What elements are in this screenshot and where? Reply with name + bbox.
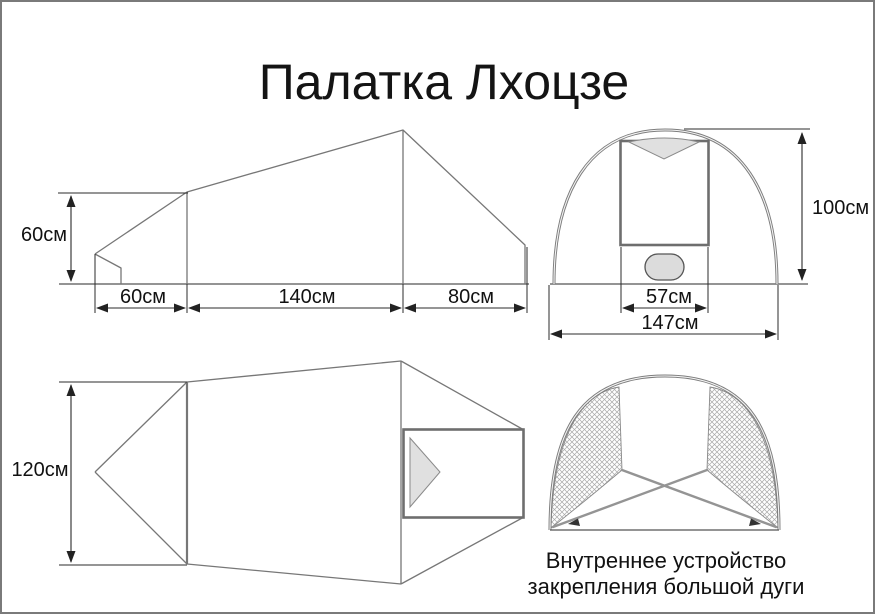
side-height-label: 60см — [21, 224, 67, 246]
front-view: 57см 147см 100см — [549, 129, 869, 340]
front-vestibule-opening — [645, 254, 684, 280]
top-reference-lines — [59, 382, 187, 565]
side-view: 60см 60см 140см 80см — [21, 130, 529, 313]
front-door-width-label: 57см — [646, 286, 692, 308]
top-view: 120см — [11, 361, 524, 584]
inner-mesh-left — [551, 387, 622, 528]
side-front-label: 60см — [120, 286, 166, 308]
inner-structure-view: Внутреннее устройство закрепления большо… — [528, 376, 805, 599]
tent-diagram: Палатка Лхоцзе 60см 60см 140см 80см 57см — [2, 2, 875, 614]
inner-caption-line2: закрепления большой дуги — [528, 574, 805, 599]
side-rear-label: 80см — [448, 286, 494, 308]
front-total-width-label: 147см — [641, 312, 698, 334]
diagram-page: Палатка Лхоцзе 60см 60см 140см 80см 57см — [0, 0, 875, 614]
page-title: Палатка Лхоцзе — [259, 54, 630, 110]
front-height-label: 100см — [812, 197, 869, 219]
top-nose-outline — [95, 382, 187, 564]
inner-mesh-right — [707, 387, 778, 528]
side-middle-label: 140см — [278, 286, 335, 308]
top-width-label: 120см — [11, 459, 68, 481]
inner-caption-line1: Внутреннее устройство — [546, 548, 787, 573]
side-front-flap — [95, 254, 121, 284]
side-pole-lines — [187, 130, 403, 284]
side-tent-outline — [95, 130, 525, 284]
top-body-outline — [187, 361, 401, 584]
